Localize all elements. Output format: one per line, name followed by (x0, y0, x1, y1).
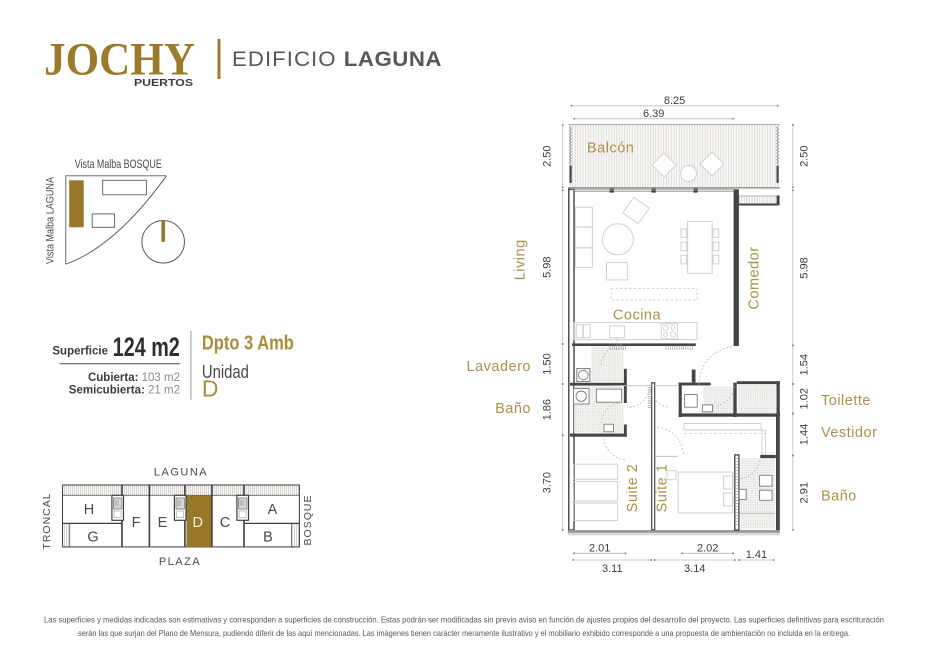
svg-text:3.11: 3.11 (602, 563, 623, 575)
svg-text:124 m2: 124 m2 (113, 332, 180, 362)
svg-text:2.01: 2.01 (589, 543, 610, 555)
svg-text:2.02: 2.02 (697, 543, 718, 555)
svg-text:Lavadero: Lavadero (467, 359, 531, 375)
svg-text:Dpto 3 Amb: Dpto 3 Amb (202, 333, 294, 355)
svg-text:Cocina: Cocina (613, 307, 662, 323)
svg-text:Vista Malba LAGUNA: Vista Malba LAGUNA (45, 176, 57, 264)
svg-text:C: C (220, 515, 230, 531)
svg-text:Toilette: Toilette (821, 393, 871, 409)
svg-text:Suite 1: Suite 1 (655, 464, 671, 513)
svg-text:Superficie: Superficie (52, 345, 108, 357)
svg-text:1.41: 1.41 (746, 549, 767, 561)
svg-text:2.91: 2.91 (799, 482, 811, 503)
svg-text:Vista Malba BOSQUE: Vista Malba BOSQUE (75, 159, 162, 171)
svg-text:B: B (263, 530, 273, 546)
svg-text:Vestidor: Vestidor (821, 425, 877, 441)
svg-text:F: F (132, 515, 141, 531)
svg-text:1.50: 1.50 (542, 353, 554, 374)
svg-text:Balcón: Balcón (587, 141, 634, 157)
svg-text:Las superficies y medidas indi: Las superficies y medidas indicadas son … (44, 615, 884, 625)
svg-text:5.98: 5.98 (799, 257, 811, 278)
svg-text:1.44: 1.44 (799, 424, 811, 445)
svg-text:8.25: 8.25 (664, 95, 685, 107)
svg-text:1.86: 1.86 (542, 399, 554, 420)
svg-text:1.54: 1.54 (799, 354, 811, 375)
svg-text:D: D (202, 376, 219, 402)
svg-text:E: E (158, 515, 168, 531)
svg-text:5.98: 5.98 (542, 256, 554, 277)
svg-text:Baño: Baño (821, 489, 857, 505)
svg-text:2.50: 2.50 (542, 145, 554, 166)
svg-text:serán las que surjan del Plano: serán las que surjan del Plano de Mensur… (78, 628, 850, 638)
svg-text:BOSQUE: BOSQUE (302, 495, 314, 546)
svg-text:Semicubierta: 21 m2: Semicubierta: 21 m2 (69, 384, 180, 396)
svg-text:LAGUNA: LAGUNA (154, 467, 208, 479)
svg-text:Suite 2: Suite 2 (625, 464, 641, 513)
svg-text:G: G (87, 530, 98, 546)
svg-text:Living: Living (513, 239, 529, 280)
svg-text:Comedor: Comedor (747, 246, 763, 309)
svg-text:A: A (268, 502, 278, 518)
svg-text:2.50: 2.50 (799, 145, 811, 166)
svg-text:Baño: Baño (495, 401, 531, 417)
svg-text:1.02: 1.02 (799, 388, 811, 409)
svg-text:H: H (84, 502, 94, 518)
svg-text:EDIFICIO LAGUNA: EDIFICIO LAGUNA (232, 47, 442, 71)
svg-text:6.39: 6.39 (643, 108, 664, 120)
svg-text:TRONCAL: TRONCAL (41, 492, 53, 549)
svg-text:3.70: 3.70 (542, 472, 554, 493)
svg-text:3.14: 3.14 (684, 563, 705, 575)
svg-text:PLAZA: PLAZA (159, 556, 201, 568)
svg-text:Cubierta: 103 m2: Cubierta: 103 m2 (88, 372, 180, 384)
svg-text:D: D (193, 515, 203, 531)
svg-text:PUERTOS: PUERTOS (134, 77, 193, 89)
